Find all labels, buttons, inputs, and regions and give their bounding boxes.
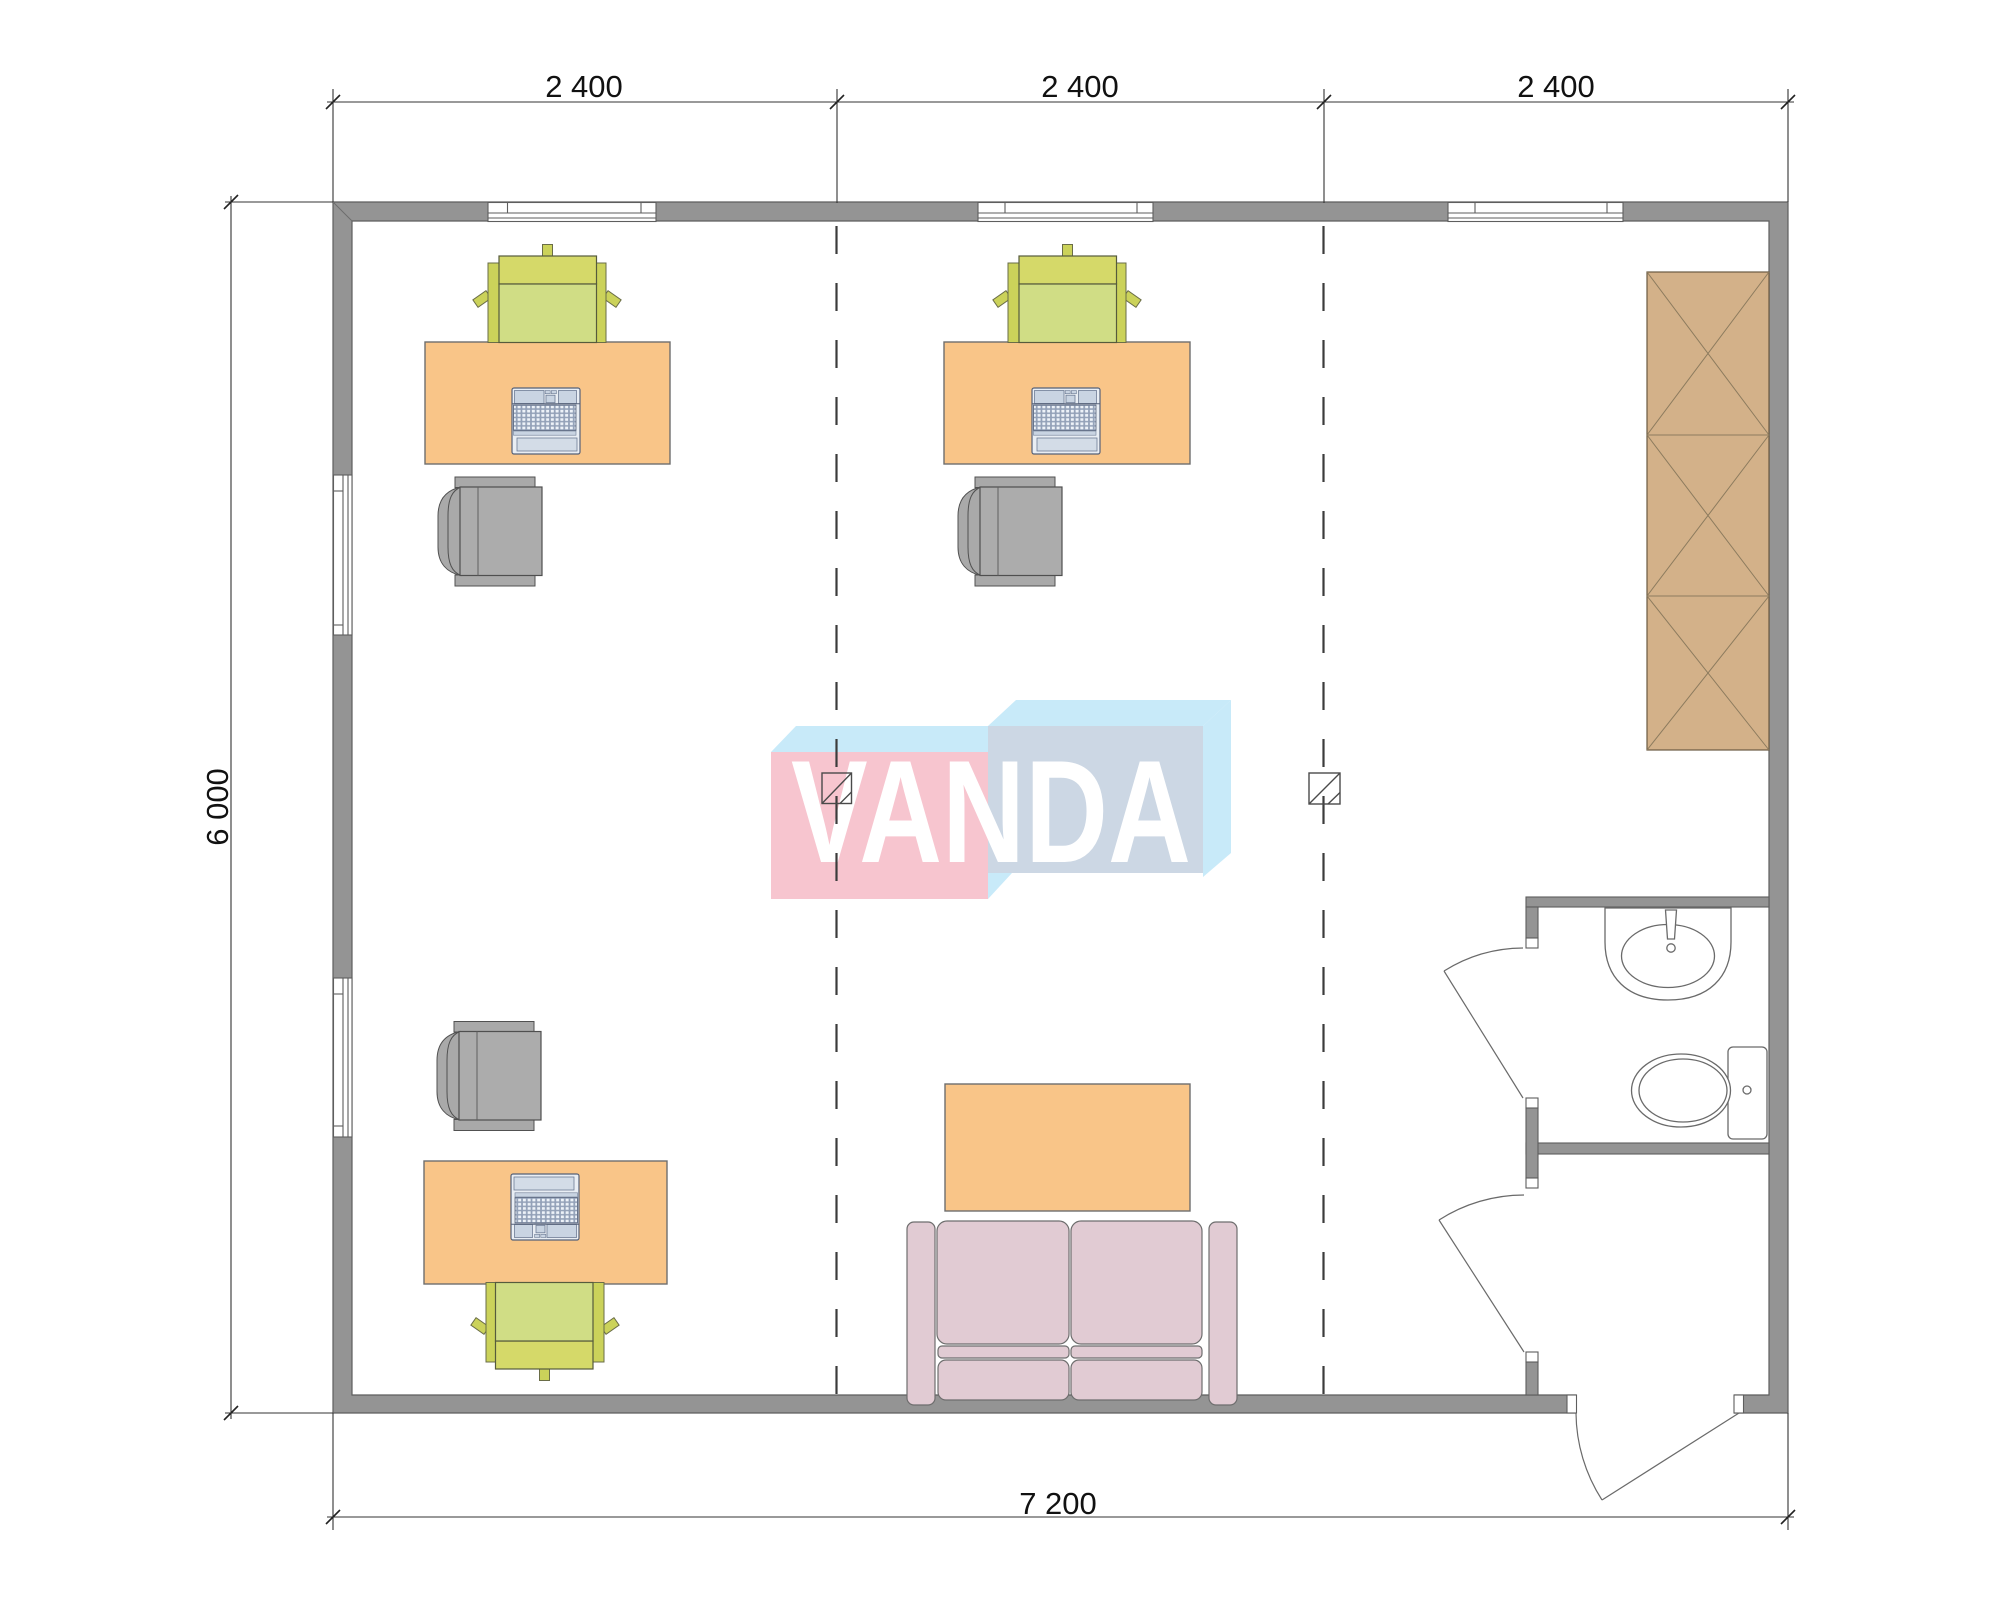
svg-text:6 000: 6 000 [200, 768, 235, 846]
svg-text:2 400: 2 400 [1517, 69, 1595, 104]
svg-text:2 400: 2 400 [545, 69, 623, 104]
svg-text:2 400: 2 400 [1041, 69, 1119, 104]
svg-text:VANDA: VANDA [791, 730, 1191, 893]
svg-text:7 200: 7 200 [1019, 1486, 1097, 1521]
